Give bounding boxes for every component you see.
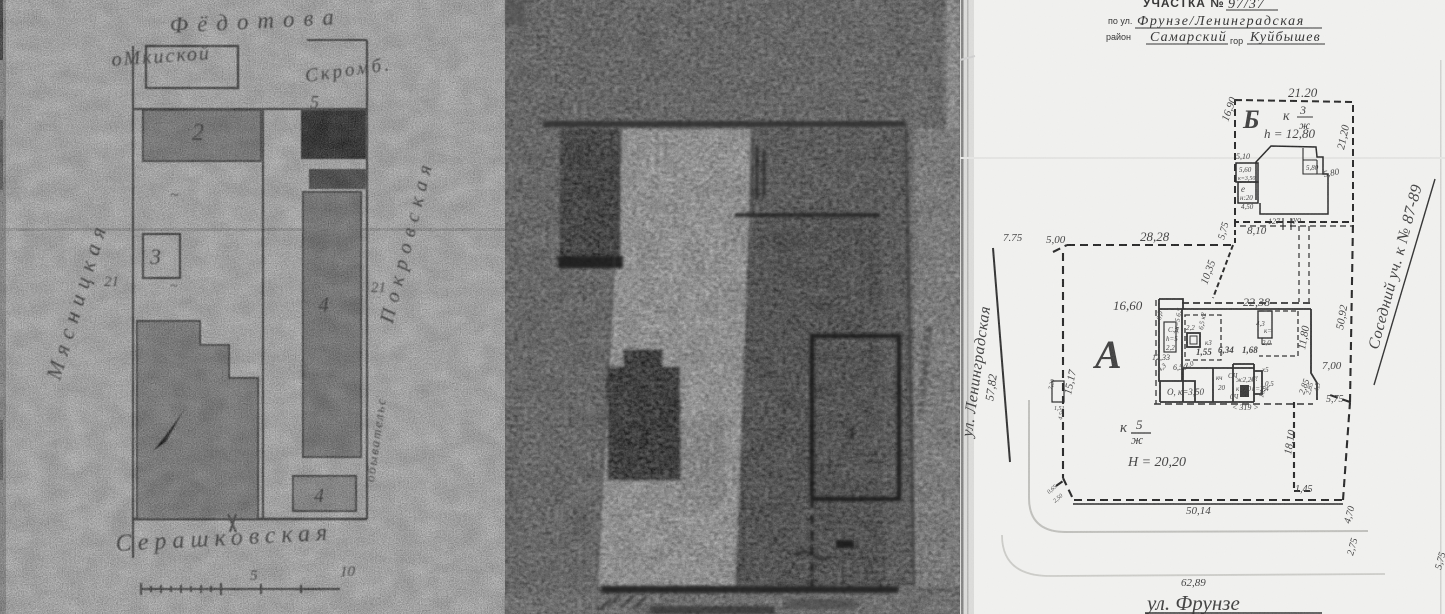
svg-text:~: ~ [852,222,862,242]
svg-text:5: 5 [640,429,649,449]
svg-text:4: 4 [845,423,855,445]
